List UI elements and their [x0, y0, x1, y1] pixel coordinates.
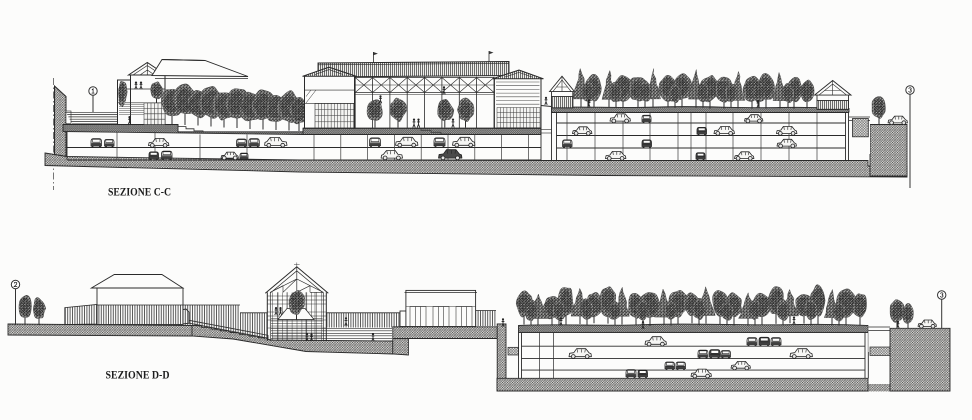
svg-text:SEZIONE C-C: SEZIONE C-C [108, 187, 171, 199]
svg-text:SEZIONE D-D: SEZIONE D-D [106, 370, 170, 382]
